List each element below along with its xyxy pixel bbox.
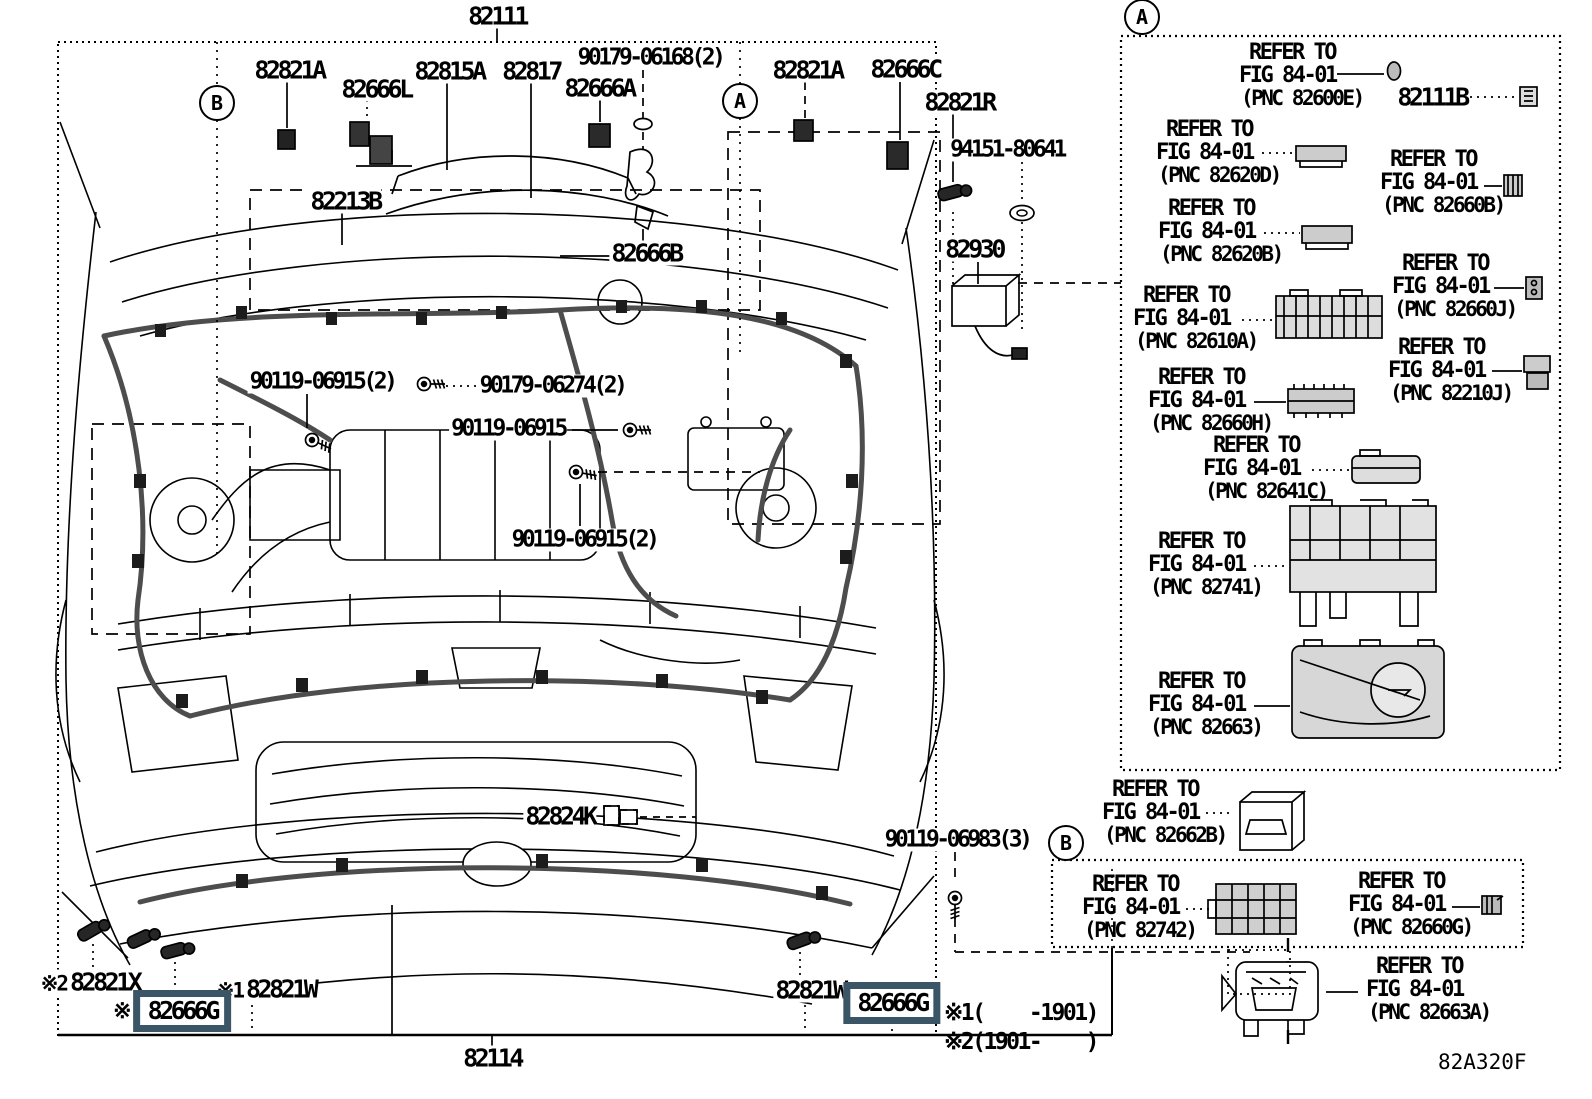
part-icon-82741: [1290, 500, 1436, 626]
callout-82821w-right: 82821W: [773, 978, 846, 1003]
callout-82666a: 82666A: [562, 76, 635, 101]
note-2: ※2(1901- ): [944, 1029, 1097, 1055]
section-marker-b: B: [199, 85, 235, 121]
refer-82610a: REFER TOFIG 84-01(PNC 82610A): [1133, 284, 1257, 353]
callout-82111: 82111: [466, 4, 528, 29]
car-body-art: [56, 122, 944, 1004]
section-marker-a-panel: A: [1124, 0, 1160, 35]
highlight-box-82666g-left: 82666G: [134, 990, 231, 1032]
callout-82824k: 82824K: [523, 804, 596, 829]
callout-90179-06274: 90179-06274(2): [478, 375, 627, 398]
callout-82821a-left: 82821A: [252, 58, 325, 83]
part-icon-82662b: [1240, 792, 1304, 850]
refer-82620d: REFER TOFIG 84-01(PNC 82620D): [1156, 118, 1280, 187]
figure-code: 82A320F: [1438, 1050, 1527, 1074]
callout-90119-06983: 90119-06983(3): [883, 829, 1032, 852]
callout-90119-06915-2-lower: 90119-06915(2): [510, 529, 659, 552]
refer-82600e: REFER TOFIG 84-01(PNC 82600E): [1239, 41, 1363, 110]
section-marker-b-panel: B: [1048, 825, 1084, 861]
callout-94151-80641: 94151-80641: [948, 139, 1066, 162]
refer-82742: REFER TOFIG 84-01(PNC 82742): [1082, 873, 1196, 942]
callout-82114: 82114: [461, 1046, 523, 1071]
callout-82815a: 82815A: [412, 59, 485, 84]
refer-82660b: REFER TOFIG 84-01(PNC 82660B): [1380, 148, 1504, 217]
callout-82213b: 82213B: [308, 189, 381, 214]
part-icon-82663a: [1222, 950, 1318, 1036]
refer-82210j: REFER TOFIG 84-01(PNC 82210J): [1388, 336, 1512, 405]
callout-90119-06915: 90119-06915: [449, 418, 567, 441]
parts-diagram-page: B A A B 82111 82821A 82666L 82815A 82817…: [0, 0, 1592, 1099]
callout-82111b: 82111B: [1395, 85, 1468, 110]
refer-82662b: REFER TOFIG 84-01(PNC 82662B): [1102, 778, 1226, 847]
refer-82741: REFER TOFIG 84-01(PNC 82741): [1148, 530, 1262, 599]
part-icon-82663: [1292, 640, 1444, 738]
callout-90119-06915-2-upper: 90119-06915(2): [248, 371, 397, 394]
refer-82663: REFER TOFIG 84-01(PNC 82663): [1148, 670, 1262, 739]
refer-82660j: REFER TOFIG 84-01(PNC 82660J): [1392, 252, 1516, 321]
callout-82666b: 82666B: [609, 241, 682, 266]
note-1: ※1( -1901): [944, 1000, 1097, 1026]
callout-82817: 82817: [500, 59, 562, 84]
callout-82666g-right: 82666G: [843, 982, 940, 1024]
callout-82666l: 82666L: [339, 77, 412, 102]
refer-82660g: REFER TOFIG 84-01(PNC 82660G): [1348, 870, 1472, 939]
callout-90179-06168: 90179-06168(2): [576, 47, 725, 70]
refer-82660h: REFER TOFIG 84-01(PNC 82660H): [1148, 366, 1272, 435]
callout-82821a-right: 82821A: [770, 58, 843, 83]
refer-82620b: REFER TOFIG 84-01(PNC 82620B): [1158, 197, 1282, 266]
highlight-box-82666g-right: 82666G: [843, 982, 940, 1024]
part-icon-82742: [1208, 884, 1296, 934]
section-marker-a: A: [722, 83, 758, 119]
refer-82663a: REFER TOFIG 84-01(PNC 82663A): [1366, 955, 1490, 1024]
callout-82930: 82930: [943, 237, 1005, 262]
callout-82666c: 82666C: [868, 57, 941, 82]
refer-82641c: REFER TOFIG 84-01(PNC 82641C): [1203, 434, 1327, 503]
callout-82821r: 82821R: [922, 90, 995, 115]
callout-82666g-left: ※ 82666G: [113, 990, 231, 1032]
